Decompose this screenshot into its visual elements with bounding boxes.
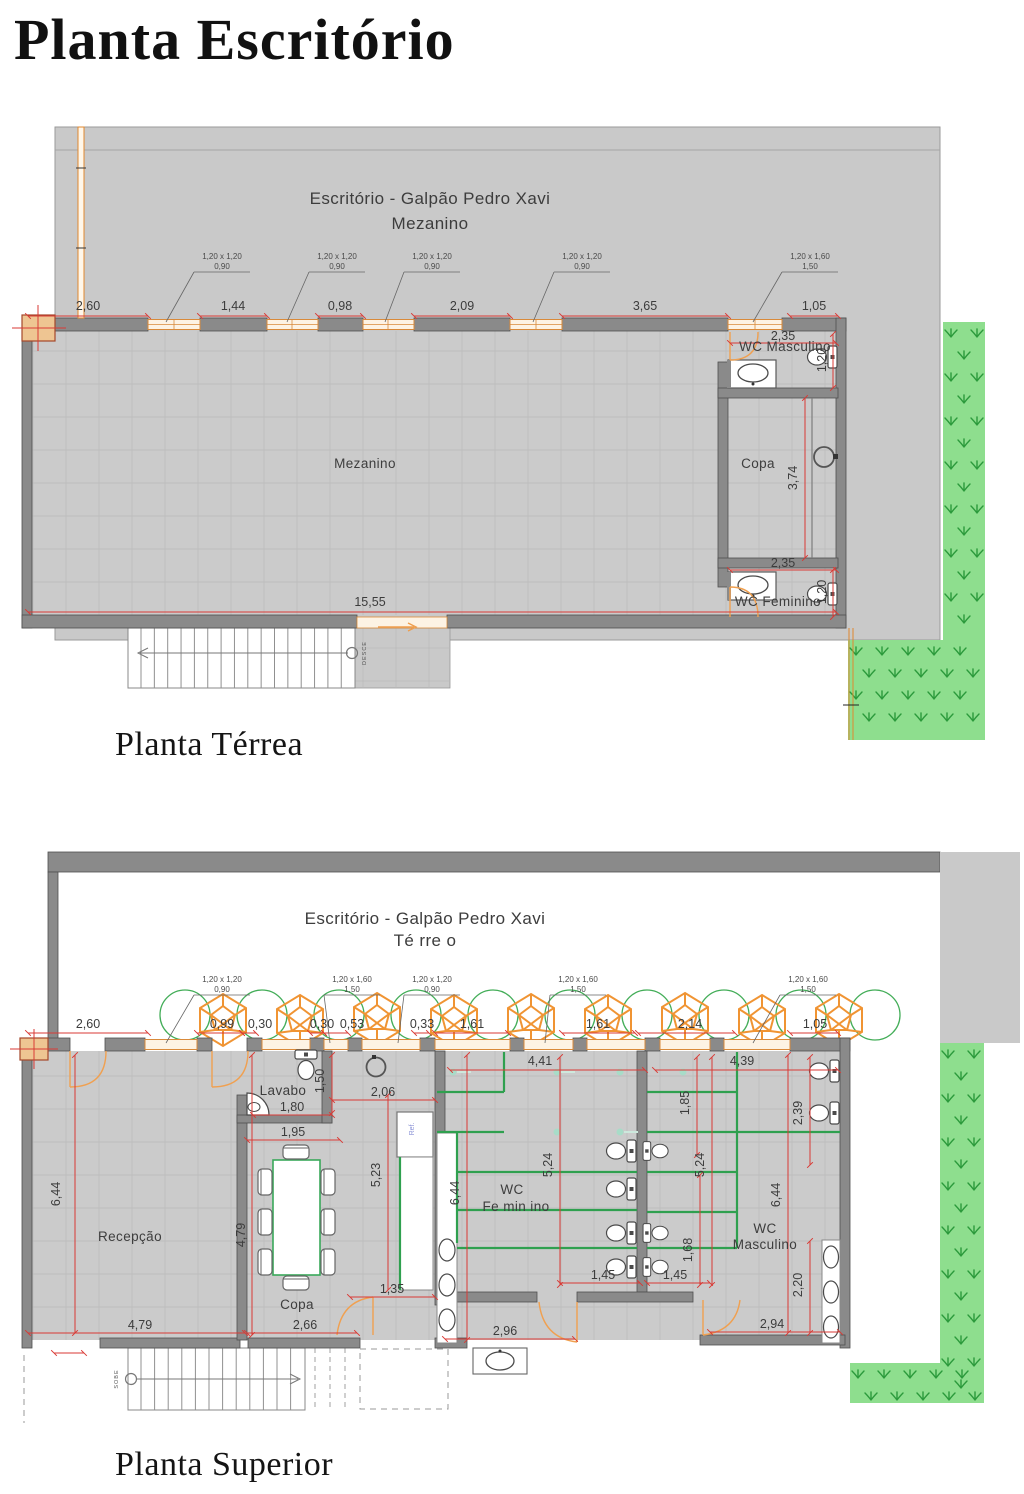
dim-label: 6,44 (769, 1183, 783, 1207)
caption-planta-terrea: Planta Térrea (115, 726, 303, 764)
drawing-title: Escritório - Galpão Pedro Xavi (305, 909, 546, 928)
dim-label: 0,30 (310, 1017, 334, 1031)
window-callout: 1,20 x 1,20 (317, 252, 357, 261)
dim-label: 1,05 (802, 299, 826, 313)
window-callout: 0,90 (329, 262, 345, 271)
hall-sink (473, 1348, 527, 1374)
stairs-up: SOBE (24, 1348, 448, 1423)
dim-label: 2,09 (450, 299, 474, 313)
page-title: Planta Escritório (14, 6, 455, 73)
dim-label: 1,80 (280, 1100, 304, 1114)
room-label-mezanino: Mezanino (334, 456, 396, 471)
dim-label: 2,94 (760, 1317, 784, 1331)
stairs-direction-label: DESCE (362, 641, 368, 665)
drawing-title: Escritório - Galpão Pedro Xavi (310, 189, 551, 208)
dim-label: 1,95 (281, 1125, 305, 1139)
dim-label: 2,60 (76, 1017, 100, 1031)
dim-label: 4,79 (128, 1318, 152, 1332)
dim-label: 5,24 (693, 1153, 707, 1177)
dim-label: 2,60 (76, 299, 100, 313)
window-callout: 1,20 x 1,20 (412, 975, 452, 984)
room-label-wc-masculino: Masculino (733, 1237, 797, 1252)
room-label-wc-feminino: WC Feminino (735, 594, 821, 609)
window-callout: 0,90 (424, 985, 440, 994)
dim-label: 2,96 (493, 1324, 517, 1338)
room-label-lavabo: Lavabo (260, 1083, 307, 1098)
dim-label: 1,45 (591, 1268, 615, 1282)
dim-label: 1,44 (221, 299, 245, 313)
dim-label: 5,24 (541, 1153, 555, 1177)
dim-label: 1,35 (380, 1282, 404, 1296)
dim-label: 4,39 (730, 1054, 754, 1068)
dim-label: 6,44 (448, 1181, 462, 1205)
dim-label: 1,45 (663, 1268, 687, 1282)
dim-label: 1,61 (586, 1017, 610, 1031)
dim-label: 4,41 (528, 1054, 552, 1068)
window-callout: 1,20 x 1,20 (412, 252, 452, 261)
window-callout: 1,20 x 1,20 (202, 252, 242, 261)
caption-planta-superior: Planta Superior (115, 1446, 333, 1484)
dim-label: 1,85 (678, 1091, 692, 1115)
fridge-label: Ref. (409, 1123, 416, 1136)
dim-label: 5,23 (369, 1163, 383, 1187)
window-callout: 1,20 x 1,60 (790, 252, 830, 261)
grass-area (850, 1043, 984, 1403)
window-callout: 1,50 (570, 985, 586, 994)
dim-label: 2,39 (791, 1101, 805, 1125)
dim-label: 2,35 (771, 556, 795, 570)
room-label-wc-feminino: WC (500, 1182, 523, 1197)
existing-wall-left (76, 127, 86, 318)
dim-label: 0,53 (340, 1017, 364, 1031)
window-callout: 0,90 (574, 262, 590, 271)
dim-label: 15,55 (354, 595, 385, 609)
dim-label: 3,65 (633, 299, 657, 313)
dim-label: 3,74 (786, 466, 800, 490)
dim-label: 0,33 (410, 1017, 434, 1031)
window-callout: 1,20 x 1,20 (202, 975, 242, 984)
drawing-subtitle: Té rre o (394, 931, 457, 950)
dim-label: 4,79 (234, 1223, 248, 1247)
window-callout: 1,50 (344, 985, 360, 994)
window-callout: 1,20 x 1,60 (558, 975, 598, 984)
window-callout: 1,50 (800, 985, 816, 994)
dim-label: 0,99 (210, 1017, 234, 1031)
stairs-direction-label: SOBE (114, 1369, 120, 1388)
dim-label: 1,61 (460, 1017, 484, 1031)
planta-terrea-drawing: DESCE (0, 120, 1024, 790)
window-callout: 0,90 (214, 985, 230, 994)
dim-label: 1,50 (313, 1069, 327, 1093)
room-label-copa: Copa (280, 1297, 314, 1312)
room-label-copa: Copa (741, 456, 775, 471)
room-label-wc-feminino: Fe min ino (482, 1199, 549, 1214)
dim-label: 6,44 (49, 1182, 63, 1206)
dim-label: 0,98 (328, 299, 352, 313)
drawing-subtitle: Mezanino (392, 214, 469, 233)
window-callout: 0,90 (214, 262, 230, 271)
room-label-recepcao: Recepção (98, 1229, 162, 1244)
dim-label: 1,68 (681, 1238, 695, 1262)
page: Planta Escritório (0, 0, 1024, 1494)
stairs-down: DESCE (128, 628, 368, 688)
window-callout: 0,90 (424, 262, 440, 271)
window-callout: 1,50 (802, 262, 818, 271)
dim-label: 2,14 (678, 1017, 702, 1031)
window-callout: 1,20 x 1,20 (562, 252, 602, 261)
planta-superior-drawing: SOBE (0, 845, 1024, 1465)
dim-label: 2,20 (791, 1273, 805, 1297)
window-callout: 1,20 x 1,60 (788, 975, 828, 984)
window-callout: 1,20 x 1,60 (332, 975, 372, 984)
dim-label: 0,30 (248, 1017, 272, 1031)
dim-label: 1,05 (803, 1017, 827, 1031)
dim-label: 2,66 (293, 1318, 317, 1332)
dim-label: 2,06 (371, 1085, 395, 1099)
room-label-wc-masculino: WC (753, 1221, 776, 1236)
room-label-wc-masculino: WC Masculino (739, 339, 831, 354)
windows (145, 1040, 790, 1050)
